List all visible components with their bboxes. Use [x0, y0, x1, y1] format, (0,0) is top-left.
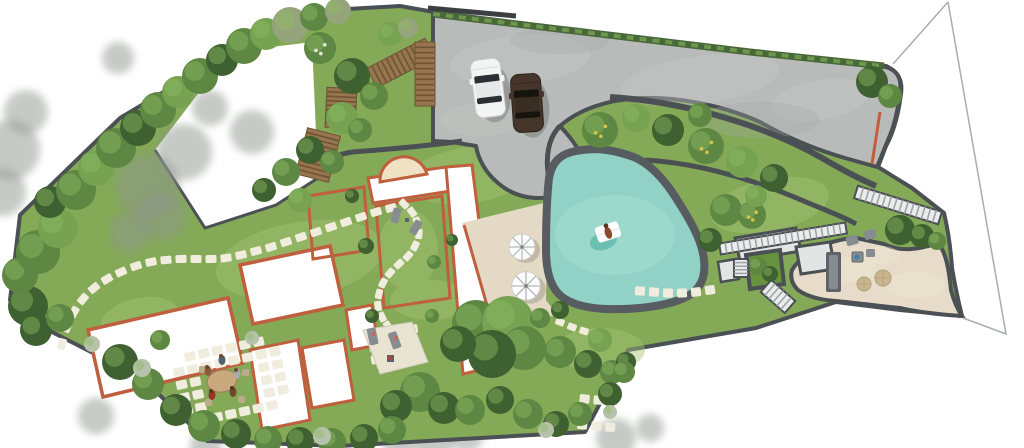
- paver: [591, 421, 602, 431]
- stone-stairs: [734, 259, 748, 277]
- tree: [486, 386, 514, 414]
- tree: [885, 215, 915, 245]
- stepping-stone: [205, 255, 216, 263]
- tree-shadow: [110, 212, 150, 252]
- tree: [425, 309, 439, 323]
- tree-shadow: [636, 414, 664, 442]
- tree: [358, 238, 374, 254]
- tree: [313, 427, 331, 445]
- tree: [760, 164, 788, 192]
- tree: [530, 308, 550, 328]
- tree: [598, 382, 622, 406]
- tree: [698, 228, 722, 252]
- tree: [455, 395, 485, 425]
- stepping-stone: [663, 288, 673, 297]
- tree: [446, 234, 458, 246]
- tree: [252, 178, 276, 202]
- tree-shadow: [192, 90, 228, 126]
- tree-shadow: [4, 90, 48, 134]
- tree: [745, 185, 767, 207]
- stepping-stone: [704, 285, 715, 295]
- tree: [568, 402, 592, 426]
- stepping-stone: [160, 255, 172, 264]
- tree: [603, 405, 617, 419]
- tree-shadow: [230, 110, 274, 154]
- tree: [710, 194, 742, 226]
- stepping-stone: [191, 255, 202, 263]
- tree: [468, 330, 516, 378]
- stepping-stone: [691, 287, 702, 297]
- tree: [652, 114, 684, 146]
- tree: [288, 188, 312, 212]
- tree: [574, 350, 602, 378]
- tree: [726, 146, 758, 178]
- landscape-plan-svg: Residential landscape master plan – top-…: [0, 0, 1024, 448]
- stepping-stone: [677, 288, 687, 297]
- stepping-stone: [649, 287, 660, 297]
- tree: [46, 304, 74, 332]
- tree: [513, 399, 543, 429]
- tree-shadow: [156, 124, 212, 180]
- pouf-a: [857, 277, 871, 291]
- tree: [427, 255, 441, 269]
- tree: [304, 32, 336, 64]
- tree: [688, 128, 724, 164]
- tree: [398, 18, 418, 38]
- tree: [360, 82, 388, 110]
- tree: [102, 344, 138, 380]
- tree: [440, 326, 476, 362]
- tree: [320, 150, 344, 174]
- tree: [160, 394, 192, 426]
- tree: [622, 104, 650, 132]
- tree: [345, 189, 359, 203]
- tree: [150, 330, 170, 350]
- stepping-stone: [635, 286, 646, 296]
- tree: [188, 410, 220, 442]
- stepping-stone: [220, 253, 232, 262]
- tree: [928, 232, 946, 250]
- tree: [296, 136, 324, 164]
- site-plan-canvas: Residential landscape master plan – top-…: [0, 0, 1024, 448]
- tree: [221, 419, 251, 448]
- stepping-stone: [175, 255, 186, 263]
- tree: [613, 361, 635, 383]
- paver: [605, 422, 616, 432]
- tree: [762, 266, 778, 282]
- pouf-b: [875, 270, 891, 286]
- tree: [544, 336, 576, 368]
- terrace-small-b: [302, 340, 354, 408]
- side-table-b: [866, 249, 875, 257]
- tree-shadow: [102, 42, 134, 74]
- timber-steps: [415, 42, 435, 106]
- tree: [588, 328, 612, 352]
- tree: [300, 3, 328, 31]
- tree: [878, 84, 902, 108]
- tree: [365, 309, 379, 323]
- tree: [582, 112, 618, 148]
- tree: [133, 359, 151, 377]
- tree: [688, 103, 712, 127]
- tree: [84, 336, 100, 352]
- tree: [272, 158, 300, 186]
- tree: [245, 331, 259, 345]
- tree-shadow: [78, 398, 114, 434]
- tree: [348, 118, 372, 142]
- tree: [378, 416, 406, 444]
- tree: [538, 422, 554, 438]
- tree: [551, 301, 569, 319]
